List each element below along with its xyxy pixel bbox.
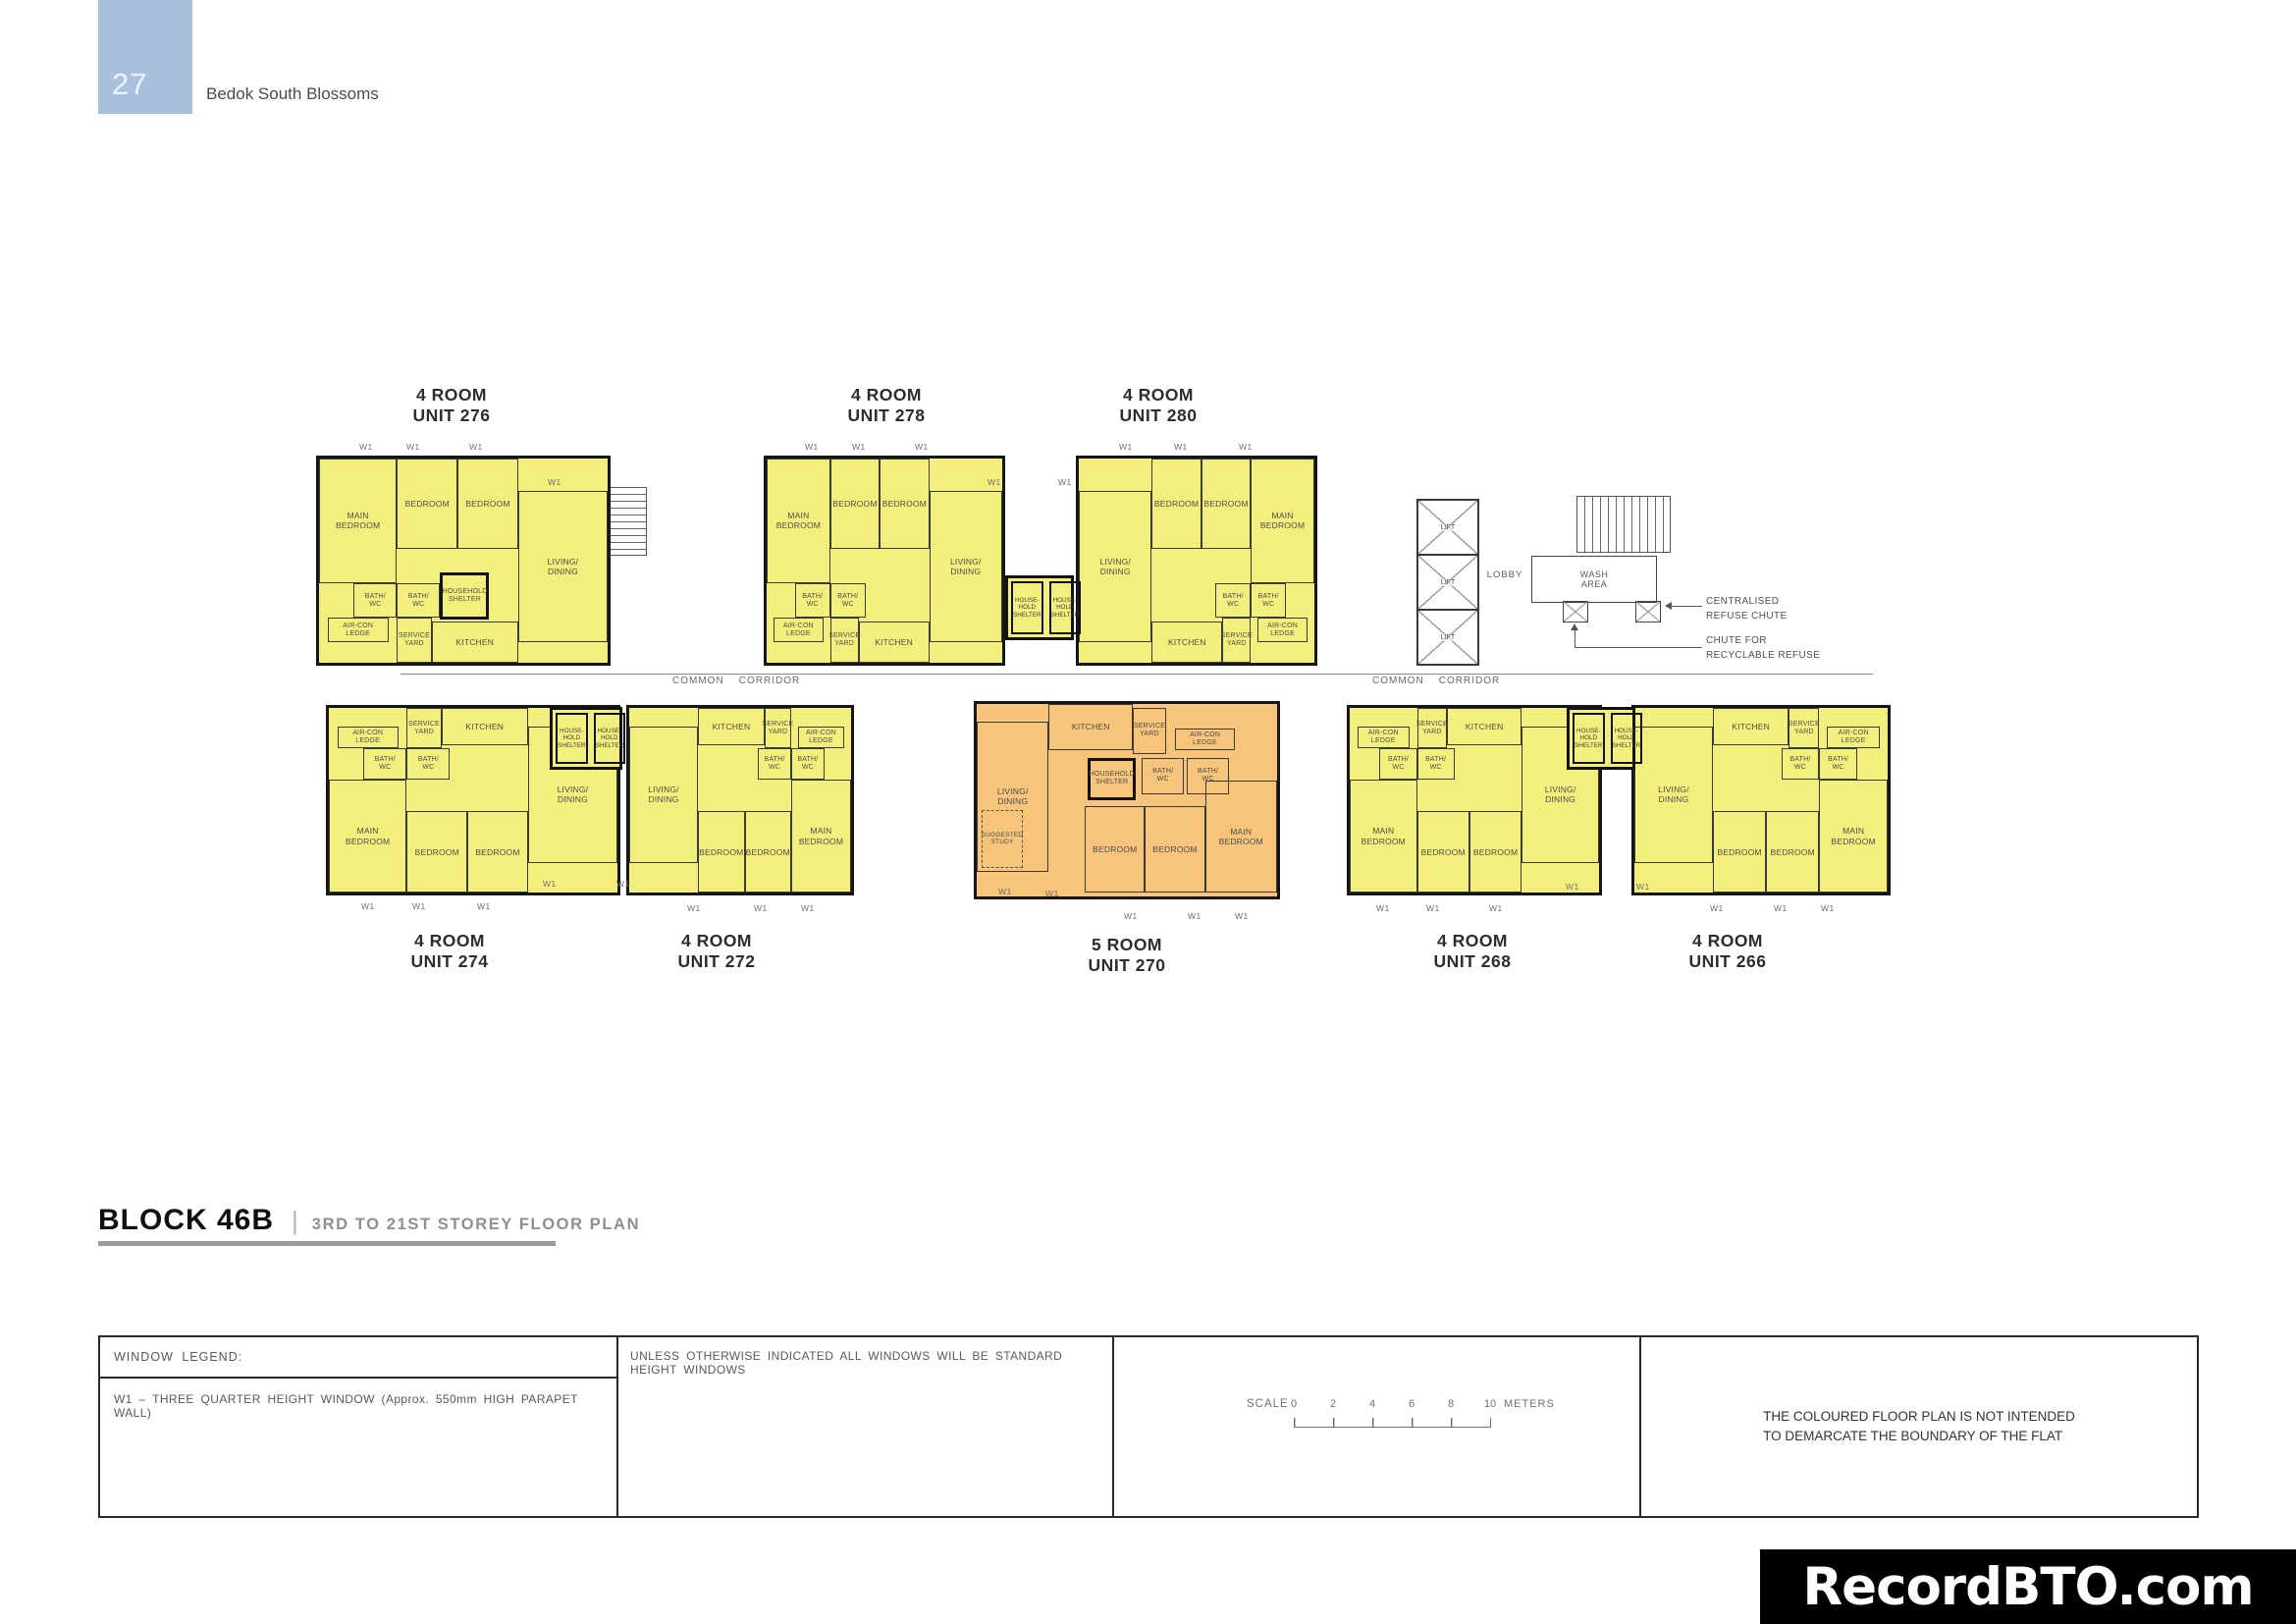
w1-window-label: W1 <box>543 879 557 889</box>
room-suggested_study: SUGGESTED STUDY <box>982 810 1024 868</box>
room-main_bedroom: MAIN BEDROOM <box>1350 780 1417 893</box>
room-label: HOUSE- HOLD SHELTER <box>1613 728 1641 749</box>
unit-number-label: UNIT 274 <box>356 951 543 972</box>
scale-tick: 6 <box>1402 1398 1421 1410</box>
standard-windows-note: UNLESS OTHERWISE INDICATED ALL WINDOWS W… <box>618 1337 1112 1377</box>
room-label: BATH/ WC <box>797 756 818 772</box>
room-label: KITCHEN <box>875 637 913 647</box>
room-bedroom_a: BEDROOM <box>1085 806 1145 893</box>
unit-266: KITCHENSERVICE YARDAIR-CON LEDGEBATH/ WC… <box>1631 705 1891 895</box>
unit-number-label: UNIT 270 <box>1034 955 1220 976</box>
room-household-shelter: HOUSE- HOLD SHELTER <box>1011 581 1043 634</box>
w1-window-label: W1 <box>805 442 819 452</box>
w1-window-label: W1 <box>1119 442 1133 452</box>
scale-cell: SCALE 0 2 4 6 8 10 METERS <box>1114 1337 1641 1516</box>
room-bedroom_a: BEDROOM <box>1713 811 1766 893</box>
household-shelter-core: HOUSE- HOLD SHELTERHOUSE- HOLD SHELTER <box>1005 575 1074 640</box>
room-label: BATH/ WC <box>1388 756 1409 772</box>
lobby-label: LOBBY <box>1470 569 1539 580</box>
w1-window-label: W1 <box>412 901 426 911</box>
room-label: LIVING/ DINING <box>548 557 579 576</box>
room-bath_b: BATH/ WC <box>1251 583 1286 618</box>
scale-label: SCALE <box>1247 1398 1289 1410</box>
room-label: BATH/ WC <box>1828 756 1848 772</box>
room-label: KITCHEN <box>1072 722 1110 731</box>
room-label: SERVICE YARD <box>1134 723 1165 738</box>
watermark-text: RecordBTO.com <box>1802 1557 2253 1617</box>
unit-label-266: 4 ROOMUNIT 266 <box>1634 931 1821 973</box>
room-bath_b: BATH/ WC <box>1819 748 1857 780</box>
unit-type-label: 4 ROOM <box>793 385 980 406</box>
page: 27 Bedok South Blossoms COMMON CORRIDOR … <box>0 0 2296 1624</box>
room-label: LIVING/ DINING <box>950 557 982 576</box>
unit-268: KITCHENSERVICE YARDAIR-CON LEDGEBATH/ WC… <box>1347 705 1602 895</box>
w1-window-label: W1 <box>1124 911 1138 921</box>
unit-number-label: UNIT 266 <box>1634 951 1821 972</box>
w1-window-label: W1 <box>1636 882 1650 892</box>
room-household_shelter: HOUSEHOLD SHELTER <box>1088 758 1136 800</box>
room-label: HOUSE- HOLD SHELTER <box>1575 728 1603 749</box>
scale-tick: 0 <box>1284 1398 1304 1410</box>
unit-280: LIVING/ DININGBEDROOMBEDROOMMAIN BEDROOM… <box>1076 456 1317 666</box>
watermark: RecordBTO.com <box>1760 1549 2296 1624</box>
room-living_dining: LIVING/ DINING <box>930 491 1002 642</box>
room-label: SUGGESTED STUDY <box>982 832 1024 846</box>
w1-window-label: W1 <box>1821 903 1835 913</box>
unit-278: MAIN BEDROOMBEDROOMBEDROOMLIVING/ DINING… <box>764 456 1005 666</box>
room-label: BEDROOM <box>1203 499 1248 509</box>
room-bath_b: BATH/ WC <box>830 583 866 618</box>
w1-window-label: W1 <box>406 442 420 452</box>
lift-label: LIFT <box>1440 524 1456 531</box>
room-label: HOUSE- HOLD SHELTER <box>1051 597 1080 619</box>
w1-definition: W1 – THREE QUARTER HEIGHT WINDOW (Approx… <box>100 1379 616 1420</box>
room-household-shelter: HOUSE- HOLD SHELTER <box>556 713 588 764</box>
w1-window-label: W1 <box>1710 903 1724 913</box>
unit-number-label: UNIT 268 <box>1379 951 1566 972</box>
room-bedroom_a: BEDROOM <box>830 459 880 549</box>
lift-shaft: LIFT <box>1418 611 1477 664</box>
room-household-shelter: HOUSE- HOLD SHELTER <box>1049 581 1082 634</box>
room-label: HOUSEHOLD SHELTER <box>1090 771 1135 786</box>
unit-label-272: 4 ROOMUNIT 272 <box>623 931 810 973</box>
unit-label-278: 4 ROOMUNIT 278 <box>793 385 980 427</box>
room-bedroom_b: BEDROOM <box>457 459 518 549</box>
room-kitchen: KITCHEN <box>442 708 528 745</box>
w1-window-label: W1 <box>1774 903 1788 913</box>
unit-276: MAIN BEDROOMBEDROOMBEDROOMLIVING/ DINING… <box>316 456 611 666</box>
room-label: MAIN BEDROOM <box>1260 511 1305 530</box>
room-label: BATH/ WC <box>1223 593 1244 609</box>
room-bath_b: BATH/ WC <box>1417 748 1455 780</box>
room-main_bedroom: MAIN BEDROOM <box>791 780 851 893</box>
arrow-icon <box>1661 602 1672 610</box>
room-label: LIVING/ DINING <box>648 785 679 804</box>
room-label: SERVICE YARD <box>1789 721 1820 736</box>
room-label: SERVICE YARD <box>1416 721 1448 736</box>
scale-bar: SCALE 0 2 4 6 8 10 METERS <box>1247 1398 1620 1447</box>
w1-window-label: W1 <box>801 903 815 913</box>
staircase-icon <box>1576 496 1671 553</box>
room-label: LIVING/ DINING <box>997 786 1029 806</box>
scale-tick: 2 <box>1323 1398 1343 1410</box>
w1-window-label: W1 <box>1489 903 1503 913</box>
room-label: HOUSEHOLD SHELTER <box>442 588 487 604</box>
unit-label-268: 4 ROOMUNIT 268 <box>1379 931 1566 973</box>
room-label: LIVING/ DINING <box>558 785 589 804</box>
room-label: BATH/ WC <box>418 756 439 772</box>
room-kitchen: KITCHEN <box>432 622 518 663</box>
w1-window-label: W1 <box>469 442 483 452</box>
room-label: KITCHEN <box>1466 722 1504 731</box>
room-bedroom_b: BEDROOM <box>1145 806 1204 893</box>
room-kitchen: KITCHEN <box>859 622 930 663</box>
w1-window-label: W1 <box>548 477 561 487</box>
room-service_yard: SERVICE YARD <box>406 708 441 748</box>
room-aircon_ledge: AIR-CON LEDGE <box>1358 727 1410 749</box>
household-shelter-core: HOUSE- HOLD SHELTERHOUSE- HOLD SHELTER <box>550 707 622 770</box>
room-bedroom_a: BEDROOM <box>397 459 457 549</box>
w1-window-label: W1 <box>1174 442 1188 452</box>
room-label: BATH/ WC <box>1425 756 1446 772</box>
wash-area-label: WASH AREA <box>1580 569 1609 589</box>
room-service_yard: SERVICE YARD <box>1133 708 1166 754</box>
room-label: KITCHEN <box>713 722 751 731</box>
room-label: LIVING/ DINING <box>1099 557 1131 576</box>
unit-number-label: UNIT 276 <box>358 406 545 426</box>
corridor-line <box>400 674 1873 675</box>
unit-number-label: UNIT 278 <box>793 406 980 426</box>
w1-window-label: W1 <box>998 887 1012 896</box>
boundary-note: THE COLOURED FLOOR PLAN IS NOT INTENDED … <box>1763 1407 2075 1447</box>
room-bath_b: BATH/ WC <box>397 583 440 618</box>
room-bath_a: BATH/ WC <box>795 583 830 618</box>
room-label: AIR-CON LEDGE <box>1839 730 1869 745</box>
room-bath_b: BATH/ WC <box>406 748 450 780</box>
room-service_yard: SERVICE YARD <box>1789 708 1819 748</box>
room-bedroom_a: BEDROOM <box>406 811 467 893</box>
room-label: HOUSE- HOLD SHELTER <box>596 728 624 749</box>
room-main_bedroom: MAIN BEDROOM <box>1205 781 1277 893</box>
room-label: BATH/ WC <box>408 593 429 609</box>
room-household-shelter: HOUSE- HOLD SHELTER <box>594 713 626 764</box>
room-living_dining: LIVING/ DINING <box>1079 491 1151 642</box>
room-label: BEDROOM <box>405 499 450 509</box>
room-label: BATH/ WC <box>1152 768 1173 784</box>
room-label: BATH/ WC <box>764 756 784 772</box>
room-kitchen: KITCHEN <box>1048 704 1133 750</box>
room-aircon_ledge: AIR-CON LEDGE <box>328 618 389 642</box>
unit-number-label: UNIT 272 <box>623 951 810 972</box>
room-label: MAIN BEDROOM <box>799 826 843 845</box>
lift-shaft: LIFT <box>1418 501 1477 556</box>
room-label: BEDROOM <box>746 847 790 857</box>
room-bedroom_a: BEDROOM <box>1151 459 1201 549</box>
w1-window-label: W1 <box>852 442 866 452</box>
unit-number-label: UNIT 280 <box>1065 406 1252 426</box>
unit-label-276: 4 ROOMUNIT 276 <box>358 385 545 427</box>
room-main_bedroom: MAIN BEDROOM <box>319 459 397 583</box>
room-label: BEDROOM <box>465 499 509 509</box>
room-label: BEDROOM <box>882 499 927 509</box>
w1-window-label: W1 <box>1239 442 1253 452</box>
room-living_dining: LIVING/ DINING <box>629 727 698 863</box>
unit-label-270: 5 ROOMUNIT 270 <box>1034 935 1220 977</box>
room-label: BATH/ WC <box>375 756 396 772</box>
room-aircon_ledge: AIR-CON LEDGE <box>774 618 823 642</box>
w1-window-label: W1 <box>361 901 375 911</box>
w1-window-label: W1 <box>477 901 491 911</box>
unit-label-280: 4 ROOMUNIT 280 <box>1065 385 1252 427</box>
title-block: BLOCK 46B | 3RD TO 21ST STOREY FLOOR PLA… <box>98 1204 640 1243</box>
room-label: BEDROOM <box>415 847 459 857</box>
scale-tick: 4 <box>1362 1398 1382 1410</box>
room-label: AIR-CON LEDGE <box>343 623 373 638</box>
common-corridor-label: COMMON CORRIDOR <box>672 676 800 686</box>
room-aircon_ledge: AIR-CON LEDGE <box>1827 727 1880 749</box>
w1-window-label: W1 <box>915 442 929 452</box>
room-label: BATH/ WC <box>1258 593 1279 609</box>
recyclable-refuse-chute-label: CHUTE FOR RECYCLABLE REFUSE <box>1706 634 1820 663</box>
lift-core: LIFT LIFT LIFT <box>1416 499 1479 666</box>
centralised-refuse-chute-box <box>1635 601 1661 623</box>
room-label: BEDROOM <box>475 847 519 857</box>
standard-windows-cell: UNLESS OTHERWISE INDICATED ALL WINDOWS W… <box>618 1337 1114 1516</box>
room-label: KITCHEN <box>1732 722 1770 731</box>
room-label: BATH/ WC <box>1789 756 1810 772</box>
common-corridor-label: COMMON CORRIDOR <box>1372 676 1500 686</box>
room-household-shelter: HOUSE- HOLD SHELTER <box>1573 713 1605 764</box>
room-bath_a: BATH/ WC <box>363 748 406 780</box>
room-service_yard: SERVICE YARD <box>1417 708 1447 748</box>
arrow-icon <box>1571 620 1578 630</box>
room-label: MAIN BEDROOM <box>1831 826 1875 845</box>
room-main_bedroom: MAIN BEDROOM <box>767 459 830 583</box>
room-label: MAIN BEDROOM <box>1219 827 1263 846</box>
room-kitchen: KITCHEN <box>698 708 765 745</box>
room-bath_a: BATH/ WC <box>1379 748 1416 780</box>
room-label: BEDROOM <box>1152 844 1197 854</box>
room-label: AIR-CON LEDGE <box>783 623 814 638</box>
w1-window-label: W1 <box>1045 889 1059 898</box>
room-bedroom_b: BEDROOM <box>880 459 929 549</box>
leader-line <box>1669 606 1702 607</box>
room-label: BATH/ WC <box>802 593 823 609</box>
room-main_bedroom: MAIN BEDROOM <box>329 780 406 893</box>
wash-area: WASH AREA <box>1531 556 1657 603</box>
room-label: BEDROOM <box>699 847 743 857</box>
room-label: LIVING/ DINING <box>1545 785 1576 804</box>
unit-270: KITCHENSERVICE YARDAIR-CON LEDGEHOUSEHOL… <box>974 701 1280 899</box>
room-label: SERVICE YARD <box>408 721 440 736</box>
window-legend-cell: WINDOW LEGEND: W1 – THREE QUARTER HEIGHT… <box>100 1337 618 1516</box>
room-kitchen: KITCHEN <box>1447 708 1522 745</box>
room-label: AIR-CON LEDGE <box>352 730 383 745</box>
room-bath_a: BATH/ WC <box>353 583 397 618</box>
room-label: HOUSE- HOLD SHELTER <box>1013 597 1041 619</box>
room-kitchen: KITCHEN <box>1151 622 1222 663</box>
room-bath_a: BATH/ WC <box>1215 583 1251 618</box>
room-bedroom_a: BEDROOM <box>1417 811 1469 893</box>
lift-shaft: LIFT <box>1418 556 1477 611</box>
room-label: BEDROOM <box>1421 847 1466 857</box>
room-kitchen: KITCHEN <box>1713 708 1789 745</box>
w1-window-label: W1 <box>1376 903 1390 913</box>
w1-window-label: W1 <box>1188 911 1201 921</box>
room-main_bedroom: MAIN BEDROOM <box>1251 459 1314 583</box>
unit-272: KITCHENSERVICE YARDAIR-CON LEDGEBATH/ WC… <box>626 705 854 895</box>
unit-type-label: 4 ROOM <box>358 385 545 406</box>
room-label: SERVICE YARD <box>399 632 430 648</box>
storey-subtitle: 3RD TO 21ST STOREY FLOOR PLAN <box>312 1216 640 1234</box>
title-underline <box>98 1241 556 1246</box>
room-bedroom_a: BEDROOM <box>698 811 744 893</box>
room-bedroom_b: BEDROOM <box>467 811 528 893</box>
room-label: AIR-CON LEDGE <box>1368 730 1399 745</box>
room-aircon_ledge: AIR-CON LEDGE <box>1257 618 1307 642</box>
w1-window-label: W1 <box>687 903 701 913</box>
room-label: BATH/ WC <box>365 593 386 609</box>
room-label: MAIN BEDROOM <box>346 826 390 845</box>
room-household-shelter: HOUSE- HOLD SHELTER <box>1611 713 1643 764</box>
room-label: BEDROOM <box>1771 847 1815 857</box>
w1-window-label: W1 <box>988 477 1001 487</box>
w1-window-label: W1 <box>359 442 373 452</box>
room-label: AIR-CON LEDGE <box>1267 623 1298 638</box>
room-bedroom_b: BEDROOM <box>1766 811 1819 893</box>
legend-table: WINDOW LEGEND: W1 – THREE QUARTER HEIGHT… <box>98 1335 2199 1518</box>
scale-ruler: 0 2 4 6 8 10 <box>1294 1398 1529 1437</box>
centralised-refuse-chute-label: CENTRALISED REFUSE CHUTE <box>1706 595 1788 623</box>
room-living_dining: LIVING/ DINING <box>518 491 608 642</box>
w1-window-label: W1 <box>1426 903 1440 913</box>
block-title: BLOCK 46B <box>98 1204 274 1237</box>
room-aircon_ledge: AIR-CON LEDGE <box>338 727 399 749</box>
room-service_yard: SERVICE YARD <box>830 618 859 663</box>
unit-type-label: 4 ROOM <box>1065 385 1252 406</box>
room-label: BATH/ WC <box>837 593 858 609</box>
room-label: BEDROOM <box>832 499 877 509</box>
w1-window-label: W1 <box>754 903 768 913</box>
room-service_yard: SERVICE YARD <box>1222 618 1251 663</box>
unit-type-label: 4 ROOM <box>1634 931 1821 951</box>
room-service_yard: SERVICE YARD <box>397 618 431 663</box>
room-aircon_ledge: AIR-CON LEDGE <box>798 727 844 749</box>
unit-type-label: 4 ROOM <box>1379 931 1566 951</box>
room-label: KITCHEN <box>1168 637 1206 647</box>
room-label: MAIN BEDROOM <box>776 511 821 530</box>
w1-window-label: W1 <box>1235 911 1249 921</box>
room-aircon_ledge: AIR-CON LEDGE <box>1175 729 1235 750</box>
room-living_dining: LIVING/ DINING <box>1634 727 1713 863</box>
room-label: AIR-CON LEDGE <box>1190 731 1220 747</box>
room-label: MAIN BEDROOM <box>1362 826 1406 845</box>
household-shelter-core: HOUSE- HOLD SHELTERHOUSE- HOLD SHELTER <box>1567 707 1635 770</box>
scale-tick: 10 <box>1480 1398 1500 1410</box>
room-label: LIVING/ DINING <box>1658 785 1689 804</box>
title-divider: | <box>292 1206 298 1236</box>
room-label: AIR-CON LEDGE <box>806 730 836 745</box>
room-label: SERVICE YARD <box>762 721 793 736</box>
unit-type-label: 5 ROOM <box>1034 935 1220 955</box>
scale-line <box>1294 1418 1491 1428</box>
room-bath_a: BATH/ WC <box>758 748 791 780</box>
room-label: BEDROOM <box>1717 847 1761 857</box>
room-label: SERVICE YARD <box>1221 632 1253 648</box>
scale-unit: METERS <box>1504 1398 1555 1410</box>
unit-label-274: 4 ROOMUNIT 274 <box>356 931 543 973</box>
room-label: MAIN BEDROOM <box>336 511 380 530</box>
leader-line <box>1575 647 1702 648</box>
scale-tick: 8 <box>1441 1398 1461 1410</box>
w1-window-label: W1 <box>1566 882 1579 892</box>
boundary-note-cell: THE COLOURED FLOOR PLAN IS NOT INTENDED … <box>1641 1337 2197 1516</box>
room-label: BEDROOM <box>1093 844 1137 854</box>
room-bedroom_b: BEDROOM <box>1469 811 1522 893</box>
room-bedroom_b: BEDROOM <box>745 811 791 893</box>
room-label: KITCHEN <box>465 722 504 731</box>
room-label: BEDROOM <box>1154 499 1199 509</box>
room-household_shelter: HOUSEHOLD SHELTER <box>440 572 489 620</box>
room-bath_a: BATH/ WC <box>1142 758 1184 794</box>
room-bath_a: BATH/ WC <box>1782 748 1820 780</box>
room-bath_b: BATH/ WC <box>791 748 825 780</box>
room-label: KITCHEN <box>455 637 494 647</box>
room-bedroom_b: BEDROOM <box>1201 459 1251 549</box>
lift-label: LIFT <box>1440 634 1456 641</box>
lift-label: LIFT <box>1440 579 1456 586</box>
window-legend-heading: WINDOW LEGEND: <box>100 1337 616 1379</box>
w1-window-label: W1 <box>616 879 630 889</box>
w1-window-label: W1 <box>1058 477 1072 487</box>
room-label: HOUSE- HOLD SHELTER <box>558 728 586 749</box>
room-service_yard: SERVICE YARD <box>765 708 791 748</box>
unit-type-label: 4 ROOM <box>623 931 810 951</box>
unit-type-label: 4 ROOM <box>356 931 543 951</box>
room-main_bedroom: MAIN BEDROOM <box>1819 780 1888 893</box>
room-label: BEDROOM <box>1473 847 1518 857</box>
room-label: SERVICE YARD <box>828 632 860 648</box>
